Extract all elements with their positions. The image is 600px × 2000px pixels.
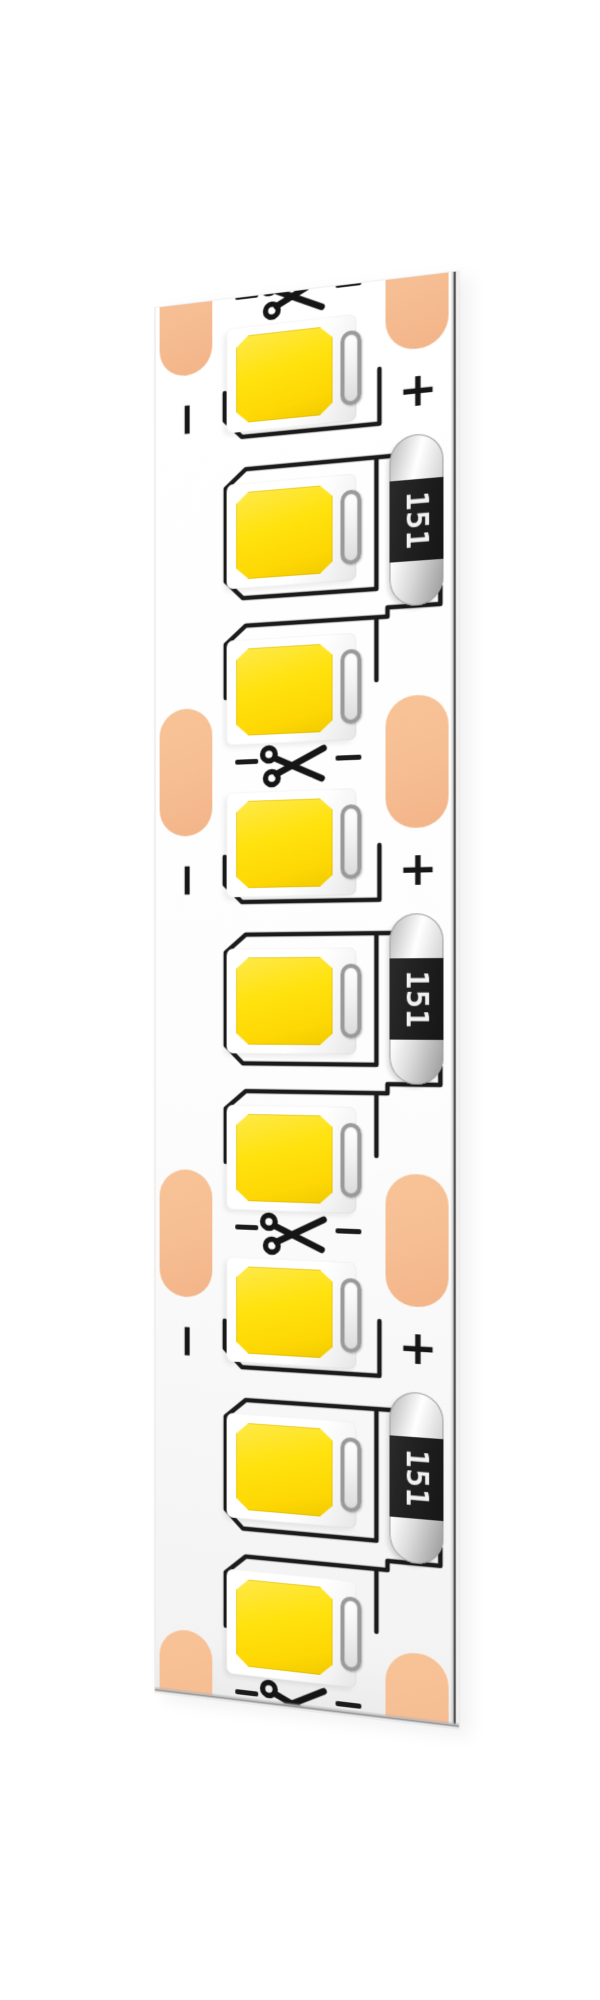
led-electrode [340,649,361,725]
smd-led [227,314,357,434]
strip-segment: − + 151 [155,1229,459,1724]
product-photo: − + 151 − + [0,0,600,2000]
led-phosphor [236,326,332,424]
plus-symbol: + [400,1328,437,1367]
resistor-label: 151 [399,970,435,1028]
led-electrode [340,329,361,406]
led-phosphor [236,957,332,1045]
led-phosphor [236,484,332,579]
plus-symbol: + [400,850,437,888]
minus-symbol: − [172,1323,206,1360]
led-strip: − + 151 − + [155,271,459,1729]
plus-symbol: + [400,369,437,409]
led-electrode [340,1437,361,1513]
smd-led [227,1105,357,1214]
smd-led [227,1569,357,1689]
strip-segment: − + 151 [155,276,459,771]
smd-led [227,473,357,589]
smd-led [227,1413,357,1529]
smd-led [227,633,357,746]
led-electrode [340,1596,361,1673]
led-electrode [340,804,361,879]
smd-led [227,948,357,1055]
led-electrode [340,1278,361,1354]
strip-segment: − + 151 [155,759,459,1241]
led-phosphor [236,643,332,736]
led-electrode [340,964,361,1039]
led-phosphor [236,798,332,888]
minus-symbol: − [172,862,206,898]
smd-resistor: 151 [390,913,444,1085]
resistor-label: 151 [399,489,435,550]
strip-right-edge [451,271,459,1729]
led-phosphor [236,1578,332,1676]
smd-led [227,1257,357,1370]
smd-resistor: 151 [390,1391,444,1567]
led-phosphor [236,1266,332,1359]
minus-symbol: − [172,400,206,439]
smd-led [227,788,357,897]
led-electrode [340,489,361,565]
resistor-label: 151 [399,1448,435,1509]
led-phosphor [236,1114,332,1204]
led-phosphor [236,1422,332,1517]
led-electrode [340,1123,361,1198]
smd-resistor: 151 [390,432,444,608]
